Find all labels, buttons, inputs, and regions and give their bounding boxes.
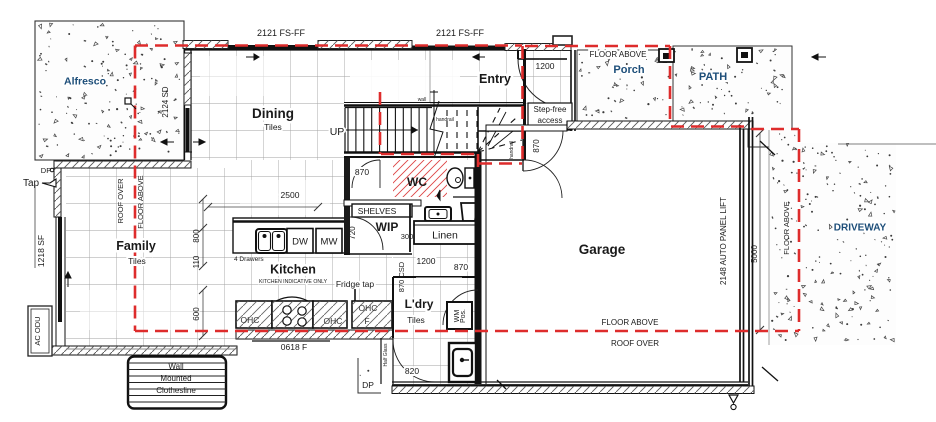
- svg-text:Porch: Porch: [613, 64, 644, 76]
- svg-text:handrail: handrail: [436, 117, 454, 123]
- svg-text:1200: 1200: [417, 256, 436, 266]
- svg-text:Mounted: Mounted: [160, 374, 191, 383]
- svg-text:DRIVEWAY: DRIVEWAY: [834, 223, 887, 234]
- svg-text:FLOOR ABOVE: FLOOR ABOVE: [136, 175, 145, 228]
- svg-text:870 CSD: 870 CSD: [397, 261, 406, 292]
- svg-text:2121 FS-FF: 2121 FS-FF: [257, 28, 306, 38]
- svg-text:2500: 2500: [281, 190, 300, 200]
- svg-text:OHC: OHC: [241, 315, 260, 325]
- svg-text:Tiles: Tiles: [128, 256, 146, 266]
- svg-text:Tiles: Tiles: [264, 122, 282, 132]
- svg-text:300: 300: [401, 232, 414, 241]
- svg-text:Fridge tap: Fridge tap: [336, 279, 375, 289]
- svg-text:0618 F: 0618 F: [281, 342, 307, 352]
- svg-text:5000: 5000: [750, 245, 759, 263]
- svg-text:FLOOR ABOVE: FLOOR ABOVE: [590, 50, 647, 59]
- svg-text:Entry: Entry: [479, 72, 511, 86]
- svg-text:MW: MW: [321, 237, 338, 248]
- svg-text:UP: UP: [330, 126, 345, 138]
- svg-text:wall: wall: [418, 97, 427, 103]
- svg-text:2124 SD: 2124 SD: [161, 86, 170, 117]
- svg-text:KITCHEN INDICATIVE ONLY: KITCHEN INDICATIVE ONLY: [259, 279, 328, 285]
- svg-text:Tiles: Tiles: [407, 315, 425, 325]
- svg-text:4 Drawers: 4 Drawers: [234, 256, 264, 263]
- svg-text:600: 600: [192, 307, 201, 321]
- svg-text:Tap: Tap: [23, 178, 40, 189]
- svg-text:AC ODU: AC ODU: [33, 316, 42, 345]
- svg-text:OHC: OHC: [324, 316, 343, 326]
- svg-text:PATH: PATH: [699, 71, 727, 83]
- svg-text:DP: DP: [41, 166, 51, 175]
- svg-text:DW: DW: [292, 237, 308, 248]
- svg-text:870: 870: [355, 167, 369, 177]
- svg-text:870: 870: [532, 139, 541, 153]
- svg-text:WIP: WIP: [376, 220, 399, 234]
- svg-text:WC: WC: [407, 175, 427, 189]
- svg-text:Family: Family: [116, 239, 156, 253]
- svg-text:FLOOR ABOVE: FLOOR ABOVE: [602, 318, 659, 327]
- svg-text:870: 870: [454, 262, 468, 272]
- svg-text:Step-free: Step-free: [534, 105, 567, 114]
- svg-text:110: 110: [192, 255, 201, 268]
- svg-text:DP: DP: [362, 380, 374, 390]
- svg-text:Half Glass: Half Glass: [383, 343, 389, 367]
- svg-text:1200: 1200: [536, 61, 555, 71]
- svg-text:FLOOR ABOVE: FLOOR ABOVE: [782, 201, 791, 254]
- svg-text:ROOF OVER: ROOF OVER: [611, 339, 659, 348]
- svg-text:Wall: Wall: [168, 362, 183, 371]
- svg-text:OHC: OHC: [359, 303, 378, 313]
- svg-text:SHELVES: SHELVES: [358, 206, 397, 216]
- svg-text:Linen: Linen: [432, 230, 458, 242]
- svg-text:800: 800: [192, 229, 201, 243]
- svg-text:handrail: handrail: [509, 141, 515, 159]
- svg-text:Garage: Garage: [579, 242, 626, 257]
- svg-text:720: 720: [348, 226, 357, 240]
- svg-text:1218 SF: 1218 SF: [36, 235, 46, 267]
- svg-text:ROOF OVER: ROOF OVER: [116, 178, 125, 224]
- svg-text:2121 FS-FF: 2121 FS-FF: [436, 28, 485, 38]
- svg-text:Clothesline: Clothesline: [156, 386, 196, 395]
- svg-text:F: F: [364, 316, 369, 326]
- svg-text:L'dry: L'dry: [405, 297, 434, 311]
- svg-text:Dining: Dining: [252, 106, 294, 121]
- svg-text:Pos.: Pos.: [460, 309, 467, 323]
- svg-text:Kitchen: Kitchen: [270, 263, 316, 277]
- svg-text:access: access: [538, 116, 563, 125]
- svg-text:820: 820: [405, 366, 419, 376]
- svg-text:Alfresco: Alfresco: [64, 76, 106, 88]
- svg-text:2148 AUTO PANEL LIFT: 2148 AUTO PANEL LIFT: [719, 197, 728, 285]
